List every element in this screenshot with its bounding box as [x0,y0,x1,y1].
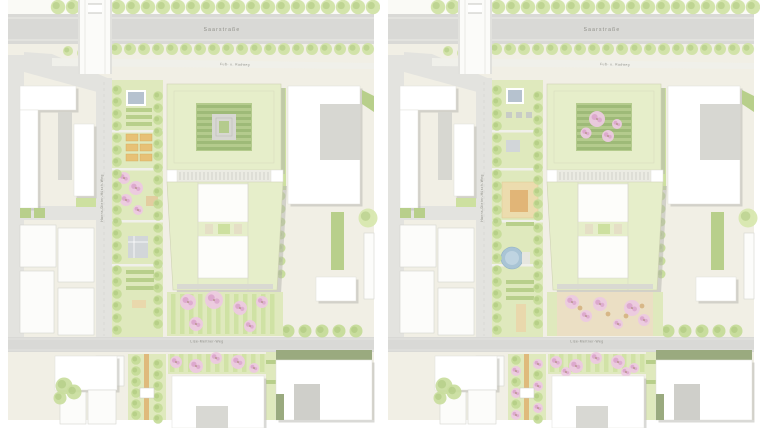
tree [533,103,543,113]
street-label-left: Hanns-Dieter-Hüsch-Weg [480,174,484,222]
tree [641,0,655,14]
tree [264,43,276,55]
footbridge [458,0,492,74]
tree [536,0,550,14]
building-annex [674,384,700,420]
blossom-tree [210,352,222,364]
tree [153,359,163,369]
siteplan-comparison: SaarstraßeFuß- u. RadwegHanns-Dieter-Hüs… [0,0,760,428]
tree [533,392,543,402]
tree [602,43,614,55]
tree [533,247,543,257]
tree [153,381,163,391]
tree [716,0,730,14]
tree [112,217,122,227]
tree [533,283,543,293]
tree [131,377,141,387]
tree [366,0,380,14]
tree [713,325,726,338]
tree [491,0,505,14]
north-building [547,84,665,174]
street-label-saarstrasse: Saarstraße [204,27,241,33]
tree [153,187,163,197]
north-building [167,84,285,174]
blossom-tree [589,111,605,127]
tree [153,151,163,161]
blossom-tree [612,119,622,129]
tree [492,289,502,299]
blossom-tree [602,130,614,142]
tree [246,0,260,14]
tree [492,97,502,107]
context-building [454,124,477,199]
street-label-bottom: Lise-Meitner-Weg [190,340,223,344]
tree [131,355,141,365]
tree [153,199,163,209]
tree [153,163,163,173]
courtyard [198,184,248,222]
blossom-tree [205,291,223,309]
siteplan-variant-1: SaarstraßeFuß- u. RadwegHanns-Dieter-Hüs… [0,0,380,428]
tree [131,366,141,376]
tree [533,175,543,185]
tree [443,46,453,56]
blossom-tree [244,320,256,332]
blossom-tree [180,294,196,310]
tree [626,0,640,14]
outlined-building [20,271,54,333]
context-building [696,277,739,304]
street-label-left: Hanns-Dieter-Hüsch-Weg [100,174,104,222]
tree [728,43,740,55]
tree [63,46,73,56]
tree [533,211,543,221]
tree [112,229,122,239]
building-annex [294,384,320,420]
tree [208,43,220,55]
tree [111,0,125,14]
tree [112,241,122,251]
context-building [400,86,459,113]
tree [112,157,122,167]
tree [152,43,164,55]
tree [112,205,122,215]
tree [222,43,234,55]
tree [533,319,543,329]
park-pavilion [128,92,144,104]
tree [153,370,163,380]
saarstrasse-road [8,14,374,44]
tree [492,301,502,311]
tree [533,271,543,281]
blossom-tree [170,356,182,368]
tree [506,0,520,14]
tree [746,0,760,14]
tree [51,0,65,14]
tree [701,0,715,14]
tree [511,355,521,365]
tree [672,43,684,55]
tree [662,325,675,338]
tree [153,115,163,125]
tree [574,43,586,55]
tree [131,410,141,420]
blossom-tree [249,363,259,373]
tree [596,0,610,14]
blossom-tree [561,367,571,377]
tree [504,43,516,55]
tree [216,0,230,14]
blossom-tree [624,300,640,316]
context-building [400,110,421,211]
tree [320,43,332,55]
tree [153,235,163,245]
tree [180,43,192,55]
blossom-tree [256,296,268,308]
tree [533,295,543,305]
tree [492,169,502,179]
tree [153,319,163,329]
tree [521,0,535,14]
tree [153,91,163,101]
footbridge [78,0,112,74]
tree [112,193,122,203]
context-building [656,360,755,423]
tree [511,377,521,387]
tree [492,313,502,323]
street-label-bottom: Lise-Meitner-Weg [570,340,603,344]
tree [492,325,502,335]
tree [112,277,122,287]
tree [581,0,595,14]
tree [194,43,206,55]
tree [533,223,543,233]
tree [54,392,67,405]
tree [434,392,447,405]
tree [112,97,122,107]
tree [686,43,698,55]
tree [656,0,670,14]
tree [551,0,565,14]
blossom-tree [189,317,203,331]
tree [644,43,656,55]
blossom-tree [621,367,631,377]
tree [201,0,215,14]
tree [731,0,745,14]
tree [153,307,163,317]
path-label-fussradweg: Fuß- u. Radweg [600,62,630,67]
blossom-tree [120,194,132,206]
blossom-tree [565,295,579,309]
tree [153,127,163,137]
tree [186,0,200,14]
tree [334,43,346,55]
blossom-tree [233,301,247,315]
tree [492,193,502,203]
park-pavilion [508,90,522,102]
context-building [316,277,359,304]
tree [153,283,163,293]
context-building [20,110,41,211]
tree [533,91,543,101]
tree [153,223,163,233]
tree [492,217,502,227]
blossom-tree [511,366,521,376]
tree [166,43,178,55]
tree [447,385,462,400]
path-label-fussradweg: Fuß- u. Radweg [220,62,250,67]
tree [533,414,543,424]
tree [153,247,163,257]
blossom-tree [533,359,543,369]
park-pavilion [506,140,520,152]
tree [533,199,543,209]
siteplan-variant-2: SaarstraßeFuß- u. RadwegHanns-Dieter-Hüs… [380,0,760,428]
tree [321,0,335,14]
blossom-tree [580,310,592,322]
tree [533,115,543,125]
tree [291,0,305,14]
plan-variant-2: SaarstraßeFuß- u. RadwegHanns-Dieter-Hüs… [388,0,760,428]
blossom-tree [533,403,543,413]
outlined-building [400,271,434,333]
blossom-tree [511,388,521,398]
outlined-building [364,233,374,299]
tree [533,139,543,149]
saarstrasse-road [388,14,754,44]
tree [112,301,122,311]
tree [153,403,163,413]
tree [153,259,163,269]
outlined-building [438,228,474,282]
tree [153,392,163,402]
tree [112,85,122,95]
street-label-saarstrasse: Saarstraße [584,27,621,33]
tree [739,209,758,228]
tree [492,145,502,155]
south-building [167,182,287,294]
tree [124,43,136,55]
tree [112,169,122,179]
tree [533,370,543,380]
south-plaza [547,292,663,336]
tree [112,181,122,191]
context-building [58,112,72,180]
tree [261,0,275,14]
blossom-tree [533,381,543,391]
tree [351,0,365,14]
tree [518,43,530,55]
tree [533,187,543,197]
tree [588,43,600,55]
tree [533,163,543,173]
tree [492,265,502,275]
context-building [438,112,452,180]
tree [492,85,502,95]
context-building [276,360,375,423]
tree [112,109,122,119]
outlined-building [438,288,474,335]
tree [112,325,122,335]
inner-court [700,104,740,160]
tree [700,43,712,55]
tree [153,295,163,305]
tree [138,43,150,55]
tree [546,43,558,55]
tree [112,313,122,323]
tree [112,133,122,143]
tree [532,43,544,55]
outlined-building [58,228,94,282]
tree [112,145,122,155]
tree [566,0,580,14]
tree [492,205,502,215]
tree [292,43,304,55]
tree [492,133,502,143]
tree [156,0,170,14]
building-annex [196,406,228,428]
courtyard [198,236,248,278]
tree [686,0,700,14]
tree [126,0,140,14]
courtyard [578,236,628,278]
blossom-tree [581,128,592,139]
blossom-tree [611,355,625,369]
outlined-building [744,233,754,299]
blossom-tree [231,355,245,369]
blossom-tree [638,314,650,326]
tree [250,43,262,55]
tree [616,43,628,55]
tree [533,151,543,161]
tree [611,0,625,14]
tree [153,103,163,113]
tree [492,241,502,251]
tree [533,235,543,245]
outlined-building [20,225,56,267]
linear-park [112,80,163,337]
tree [348,43,360,55]
courtyard [578,184,628,222]
blossom-tree [613,319,623,329]
blossom-tree [189,359,203,373]
tree [492,157,502,167]
tree [533,127,543,137]
park-pavilion [128,236,148,258]
outlined-building [400,225,436,267]
blossom-tree [129,181,143,195]
tree [742,43,754,55]
tree [730,325,743,338]
plan-variant-1: SaarstraßeFuß- u. RadwegHanns-Dieter-Hüs… [8,0,380,428]
outlined-building [88,390,116,424]
blossom-tree [593,297,607,311]
tree [131,388,141,398]
tree [153,271,163,281]
south-building [547,182,667,294]
tree [276,0,290,14]
tree [679,325,692,338]
tree [714,43,726,55]
linear-park [492,80,543,337]
tree [306,43,318,55]
tree [299,325,312,338]
tree [533,307,543,317]
blossom-tree [550,356,562,368]
tree [560,43,572,55]
tree [153,139,163,149]
tree [153,211,163,221]
tree [141,0,155,14]
tree [282,325,295,338]
tree [333,325,346,338]
tree [492,253,502,263]
tree [359,209,378,228]
dark-roof-building [656,350,752,360]
tree [533,259,543,269]
tree [492,229,502,239]
context-building [20,86,79,113]
tree [362,43,374,55]
blossom-tree [511,410,521,420]
blossom-tree [569,359,583,373]
tree [131,399,141,409]
tree [112,265,122,275]
tree [231,0,245,14]
tree [671,0,685,14]
tree [492,277,502,287]
tree [236,43,248,55]
tree [630,43,642,55]
tree [492,121,502,131]
outlined-building [468,390,496,424]
tree [492,109,502,119]
dark-roof-building [276,350,372,360]
tree [112,253,122,263]
tree [492,181,502,191]
tree [658,43,670,55]
tree [171,0,185,14]
blossom-tree [590,352,602,364]
tree [306,0,320,14]
tree [278,43,290,55]
tree [67,385,82,400]
tree [350,325,363,338]
tree [153,414,163,424]
tree [511,399,521,409]
tree [153,175,163,185]
tree [316,325,329,338]
inner-court [320,104,360,160]
context-building [74,124,97,199]
building-annex [576,406,608,428]
blossom-tree [133,205,143,215]
tree [696,325,709,338]
tree [336,0,350,14]
tree [112,121,122,131]
tree [431,0,445,14]
outlined-building [58,288,94,335]
tree [112,289,122,299]
